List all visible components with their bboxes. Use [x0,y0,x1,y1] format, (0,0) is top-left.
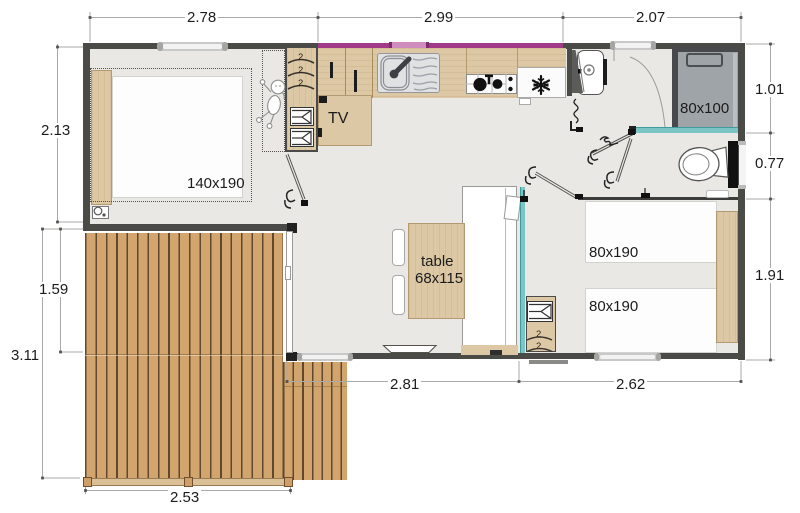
svg-text:2: 2 [298,65,303,76]
svg-text:2: 2 [536,341,541,352]
svg-text:2: 2 [298,52,303,63]
svg-text:2: 2 [298,78,303,89]
svg-text:2: 2 [536,329,541,340]
